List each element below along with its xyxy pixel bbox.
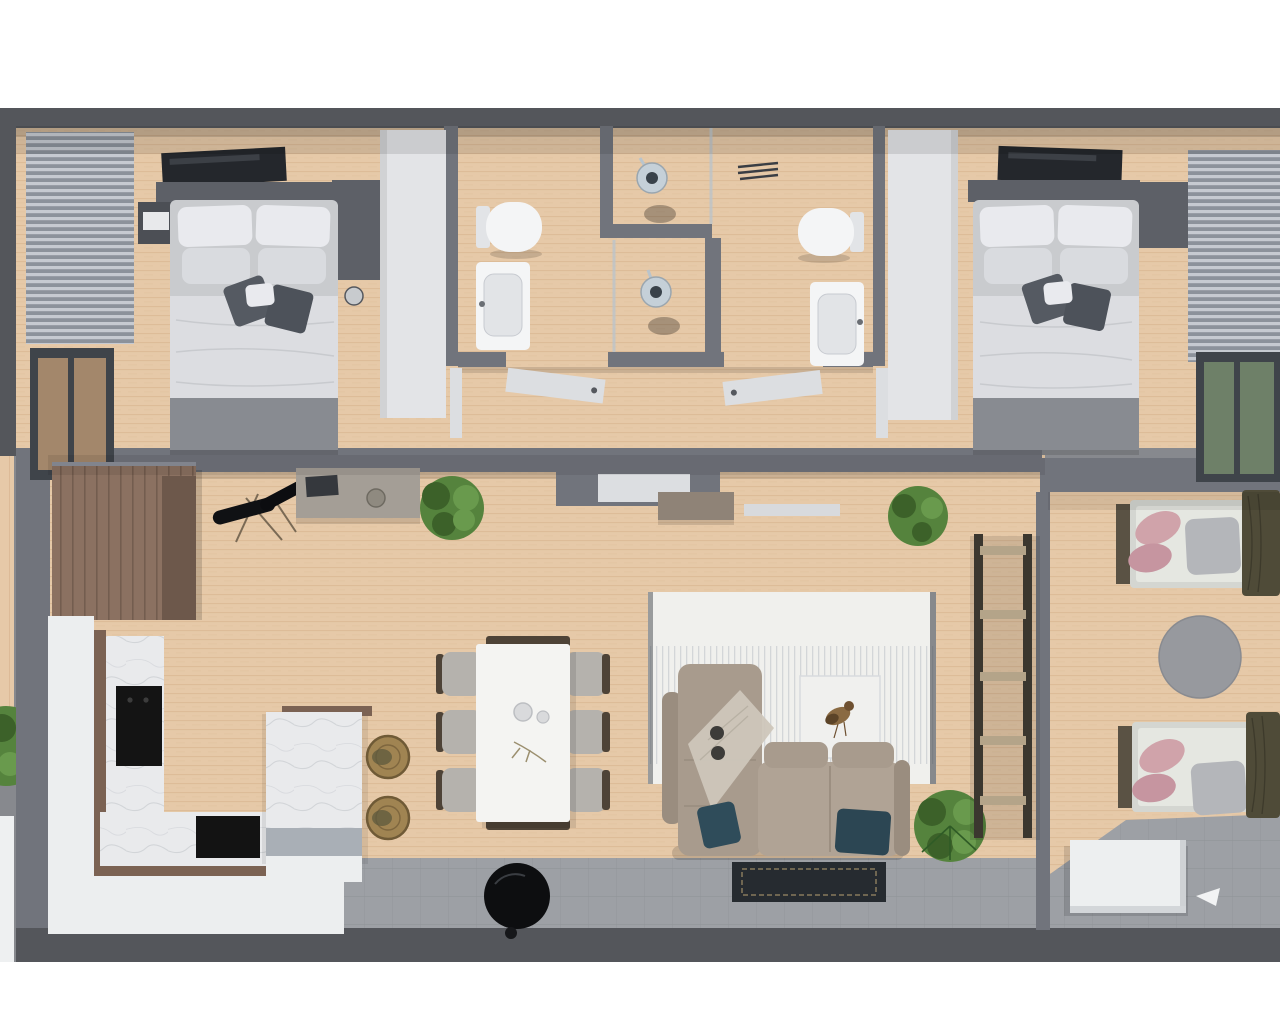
wall-shading-top	[16, 126, 1280, 154]
sofa-back-cushion	[832, 742, 894, 768]
wardrobe-right	[1136, 182, 1192, 248]
headboard-shelf-right	[968, 180, 1140, 202]
bed-headboard	[1116, 504, 1132, 584]
faucet	[857, 319, 863, 325]
sofa-back-cushion	[764, 742, 828, 768]
wall-shelf	[744, 504, 840, 516]
plate	[514, 703, 532, 721]
floorplan-svg	[0, 0, 1280, 1024]
doormat	[732, 862, 886, 902]
oven	[196, 816, 260, 858]
wardrobe-left	[332, 180, 380, 280]
dining-table	[476, 644, 570, 822]
letterbox-top	[0, 0, 1280, 108]
living-left-wall	[16, 452, 50, 930]
wall-shading-living	[48, 455, 1045, 475]
foot-blanket	[170, 398, 338, 450]
closet-column-right	[888, 130, 958, 420]
gray-pillow	[1185, 517, 1242, 576]
rattan-stool-top	[367, 736, 409, 778]
table-lamp-left	[345, 287, 363, 305]
washbasin-right	[810, 282, 864, 366]
bird-head	[844, 701, 854, 711]
outside-slab	[0, 816, 14, 962]
pillow	[182, 248, 250, 284]
pillow	[258, 248, 326, 284]
shower-wall-b	[600, 224, 712, 238]
shower-wall-c	[705, 238, 721, 366]
pillow	[979, 205, 1054, 248]
nightstand-left	[138, 202, 174, 244]
floorplan-render	[0, 0, 1280, 1024]
wall-right-bath	[873, 126, 885, 366]
pillow	[177, 205, 252, 248]
wall-bench	[658, 492, 734, 520]
pillow	[984, 248, 1052, 284]
pillow	[255, 205, 330, 248]
single-bed-bottom	[1118, 712, 1280, 818]
pillow	[1057, 205, 1132, 248]
window-blinds-left	[26, 132, 134, 344]
door-bedroom-right	[876, 368, 888, 438]
kids-desk	[1064, 840, 1188, 916]
teal-pillow	[835, 808, 892, 856]
double-bed-right	[973, 200, 1139, 455]
ladder-shelf-divider	[970, 534, 1040, 840]
closet-column-left	[380, 130, 446, 418]
pillow	[1060, 248, 1128, 284]
dining-chairs-left	[436, 652, 482, 812]
double-bed-left	[170, 200, 338, 455]
letterbox-bottom	[0, 962, 1280, 1024]
bedroom-right	[968, 146, 1280, 482]
washbasin-left	[476, 262, 530, 350]
terrace-tile-floor	[336, 858, 1045, 930]
gray-pillow	[1190, 760, 1247, 816]
door-bedroom-left	[450, 368, 462, 438]
counter-front-bottom	[48, 876, 344, 934]
window-right	[1196, 352, 1280, 482]
foot-blanket	[973, 398, 1139, 450]
kitchen-island	[262, 706, 372, 882]
dining-area	[436, 636, 610, 830]
plate	[537, 711, 549, 723]
outer-wall-top	[0, 108, 1280, 128]
potted-plant-top-right	[888, 486, 948, 546]
potted-plant-dining	[420, 476, 484, 540]
sideboard	[296, 468, 420, 524]
window-blinds-right	[1188, 150, 1280, 362]
rattan-stool-bottom	[367, 797, 409, 839]
wall-left-bath	[444, 126, 458, 366]
cooktop	[116, 686, 162, 766]
round-rug	[1159, 616, 1241, 698]
bedroom-left	[26, 132, 380, 480]
wall-shading-kids	[1048, 492, 1280, 510]
faucet	[479, 301, 485, 307]
bed-headboard	[1118, 726, 1134, 808]
sofa-armrest-right	[894, 760, 910, 856]
outer-wall-left	[0, 126, 16, 456]
